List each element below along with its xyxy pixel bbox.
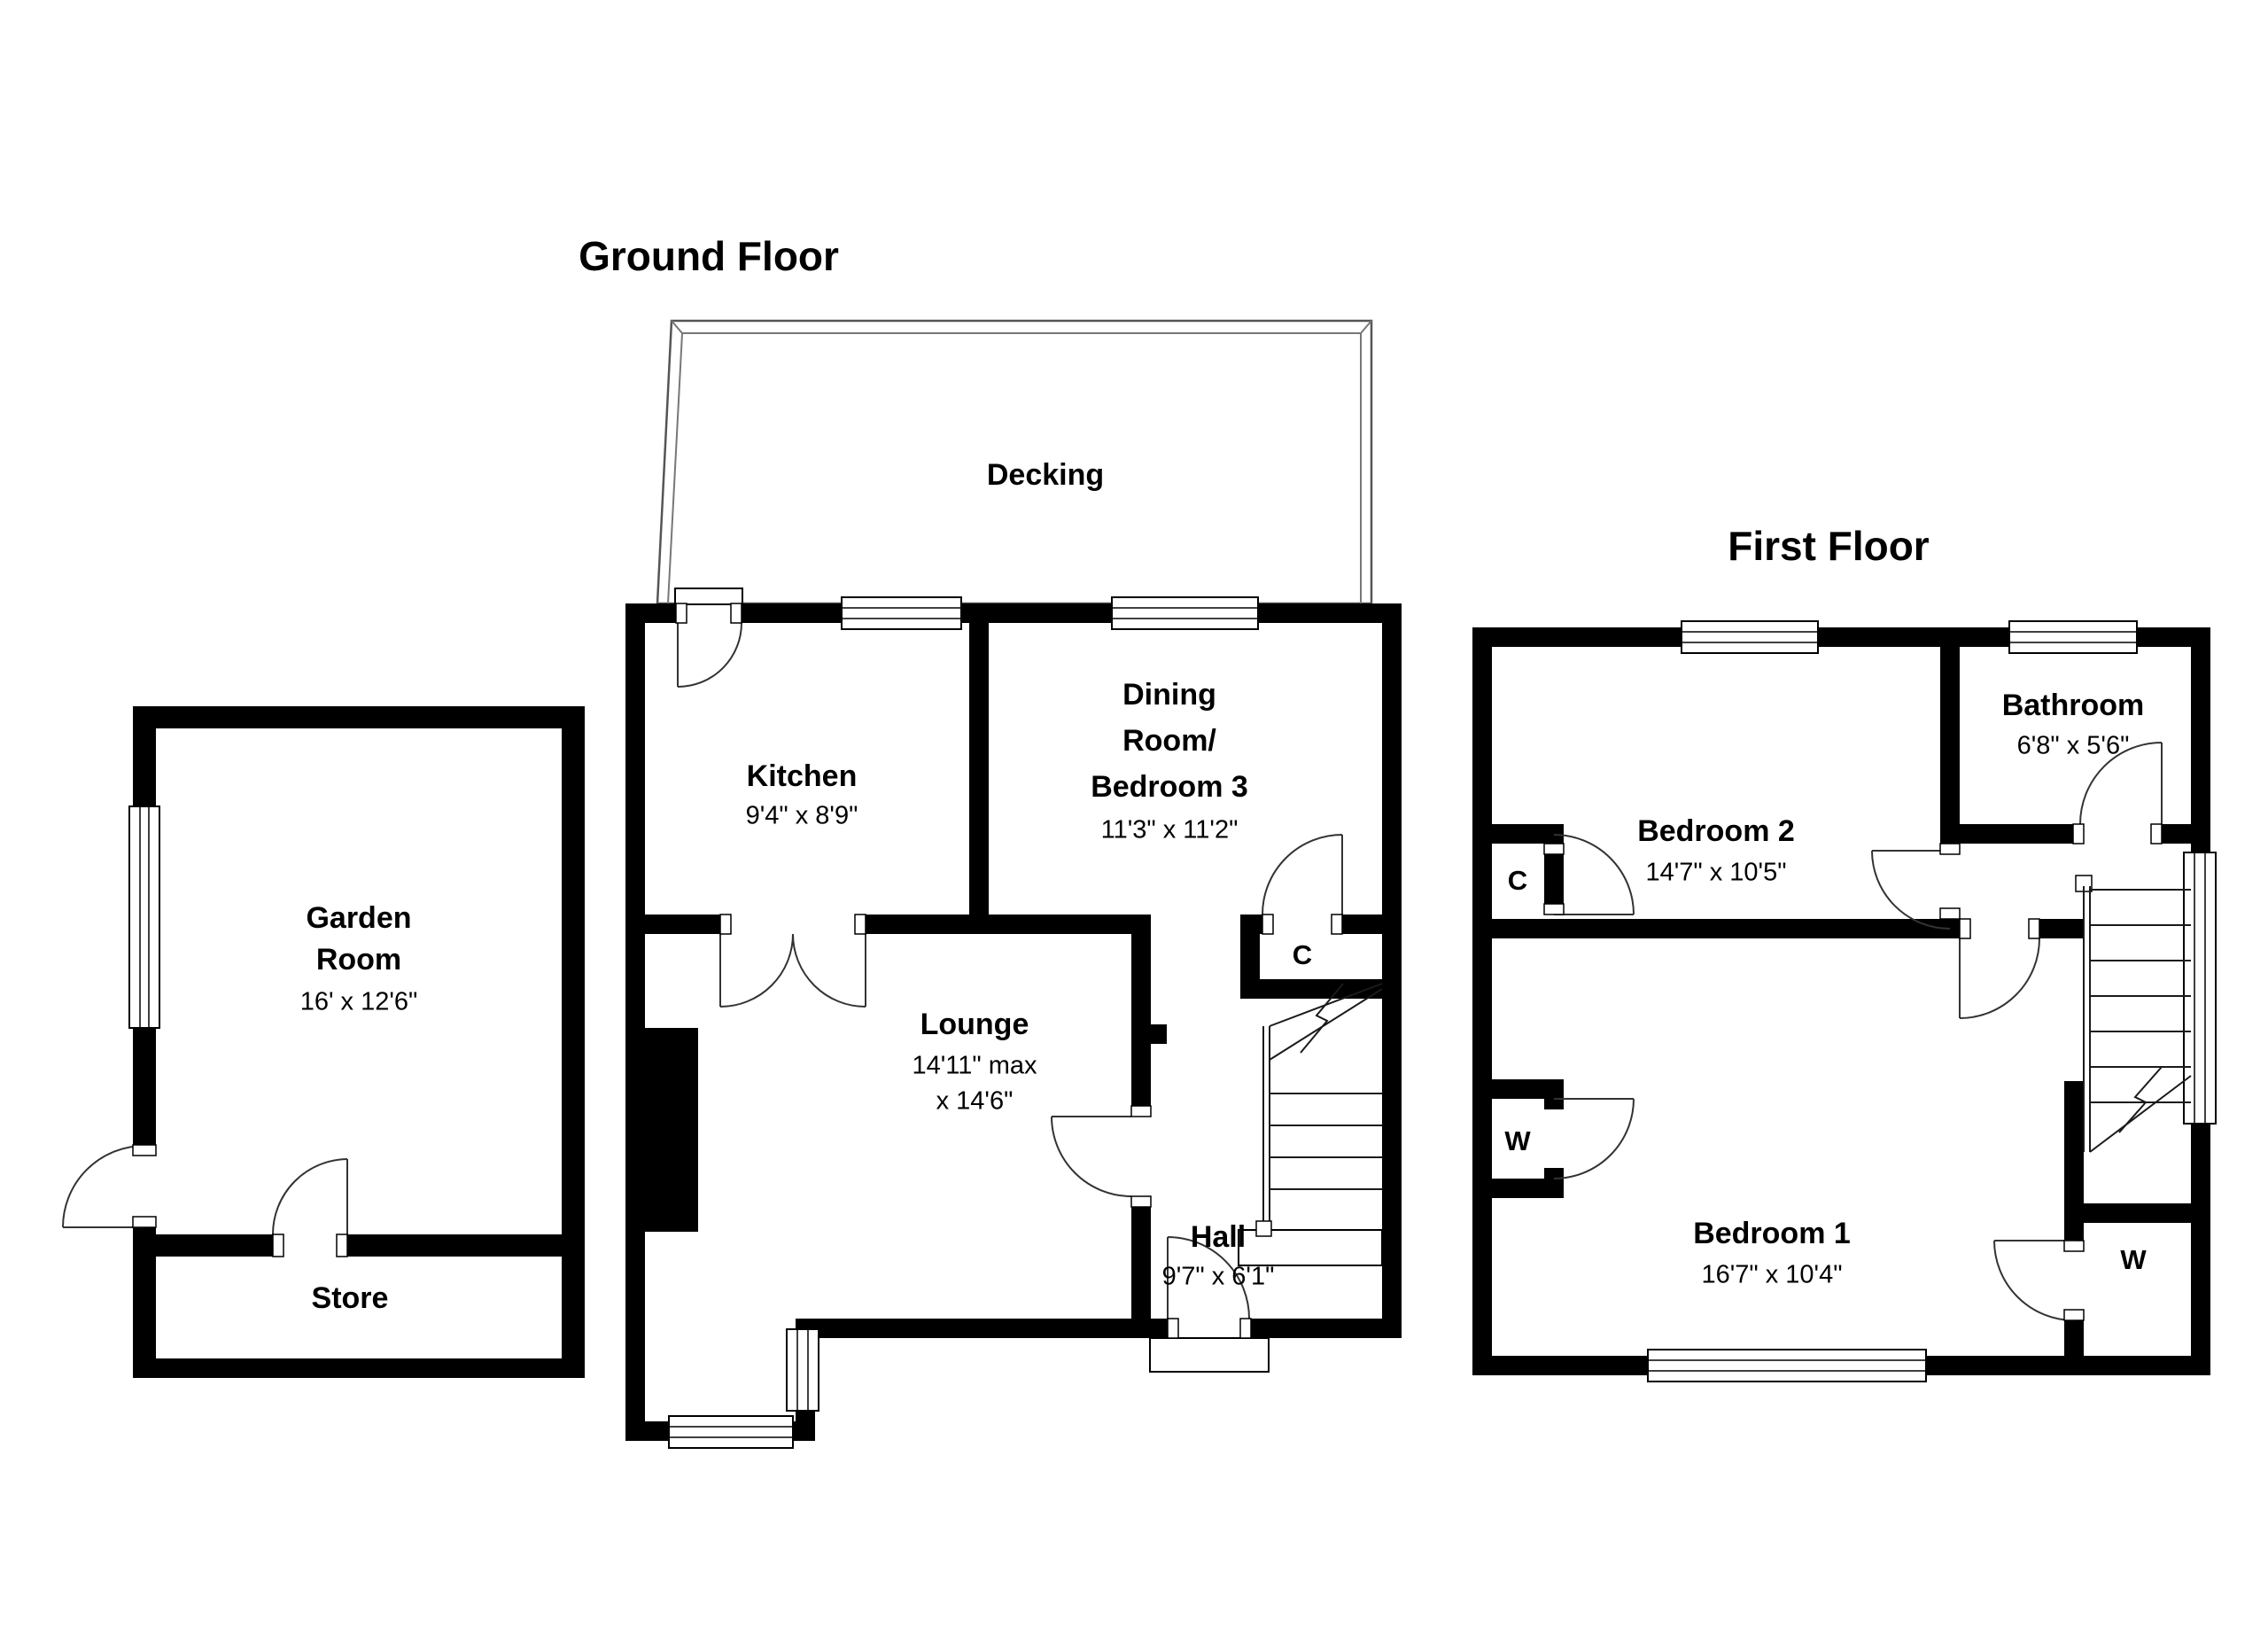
- dining-window: [1112, 597, 1258, 629]
- kitchen-lounge-double-doors: [720, 934, 866, 1007]
- hall-dims: 9'7" x 6'1": [1162, 1263, 1275, 1291]
- first-floor-title: First Floor: [1728, 523, 1930, 569]
- lounge-bay-side-window: [787, 1329, 819, 1411]
- bathroom-label: Bathroom: [2002, 689, 2145, 722]
- dining-dims: 11'3" x 11'2": [1101, 816, 1239, 844]
- garden-room-label-line1: Garden: [306, 901, 411, 935]
- bedroom2-label: Bedroom 2: [1637, 814, 1795, 848]
- kitchen-dims: 9'4" x 8'9": [746, 802, 858, 830]
- ground-floor-stairs: [1239, 984, 1382, 1265]
- decking-area: Decking: [657, 321, 1371, 603]
- store-label: Store: [312, 1281, 389, 1315]
- ground-floor-labels: Kitchen 9'4" x 8'9" Dining Room/ Bedroom…: [300, 678, 1313, 1315]
- bathroom-window: [2009, 621, 2137, 653]
- garden-room-window: [129, 806, 159, 1028]
- lounge-bay-bottom-window: [669, 1416, 793, 1448]
- decking-label: Decking: [987, 458, 1104, 492]
- wardrobe-right-door: [1994, 1241, 2074, 1320]
- chimney-breast: [645, 1028, 698, 1232]
- ground-floor-title: Ground Floor: [579, 233, 839, 279]
- bedroom2-door: [1872, 851, 1950, 929]
- lounge-hall-door: [1052, 1117, 1131, 1196]
- bedroom1-dims: 16'7" x 10'4": [1701, 1261, 1842, 1289]
- kitchen-window: [842, 597, 961, 629]
- wardrobe-left-label: W: [1504, 1125, 1531, 1156]
- first-floor-labels: Bedroom 2 14'7" x 10'5" Bathroom 6'8" x …: [1504, 689, 2147, 1289]
- kitchen-label: Kitchen: [747, 759, 858, 793]
- floorplan-canvas: Ground Floor First Floor Decking: [0, 0, 2268, 1650]
- bathroom-dims: 6'8" x 5'6": [2017, 732, 2130, 760]
- dining-label-line3: Bedroom 3: [1091, 770, 1248, 804]
- garden-room-label-line2: Room: [316, 943, 401, 977]
- dining-label-line2: Room/: [1122, 724, 1216, 758]
- stair-landing-window: [2184, 852, 2216, 1124]
- wardrobe-left-door: [1554, 1099, 1634, 1179]
- dining-label-line1: Dining: [1122, 678, 1216, 712]
- bedroom2-window: [1682, 621, 1818, 653]
- garden-store-door: [273, 1159, 347, 1234]
- lounge-dims-line2: x 14'6": [936, 1087, 1014, 1116]
- ground-closet-door: [1262, 835, 1342, 915]
- bedroom1-door: [1960, 938, 2039, 1018]
- ground-closet-label: C: [1293, 939, 1312, 970]
- first-floor-stairs: [2076, 876, 2191, 1152]
- bedroom1-window: [1648, 1350, 1926, 1381]
- bedroom2-dims: 14'7" x 10'5": [1645, 859, 1786, 887]
- wardrobe-right-label: W: [2120, 1244, 2147, 1275]
- hall-label: Hall: [1191, 1220, 1246, 1254]
- lounge-dims-line1: 14'11" max: [912, 1052, 1037, 1080]
- floorplan-page: Ground Floor First Floor Decking: [0, 0, 2268, 1650]
- garden-building-walls: [131, 706, 585, 1378]
- first-closet-label: C: [1508, 865, 1527, 896]
- bedroom1-label: Bedroom 1: [1693, 1217, 1851, 1250]
- lounge-label: Lounge: [920, 1008, 1029, 1041]
- first-closet-door: [1554, 835, 1634, 915]
- garden-room-dims: 16' x 12'6": [300, 988, 418, 1016]
